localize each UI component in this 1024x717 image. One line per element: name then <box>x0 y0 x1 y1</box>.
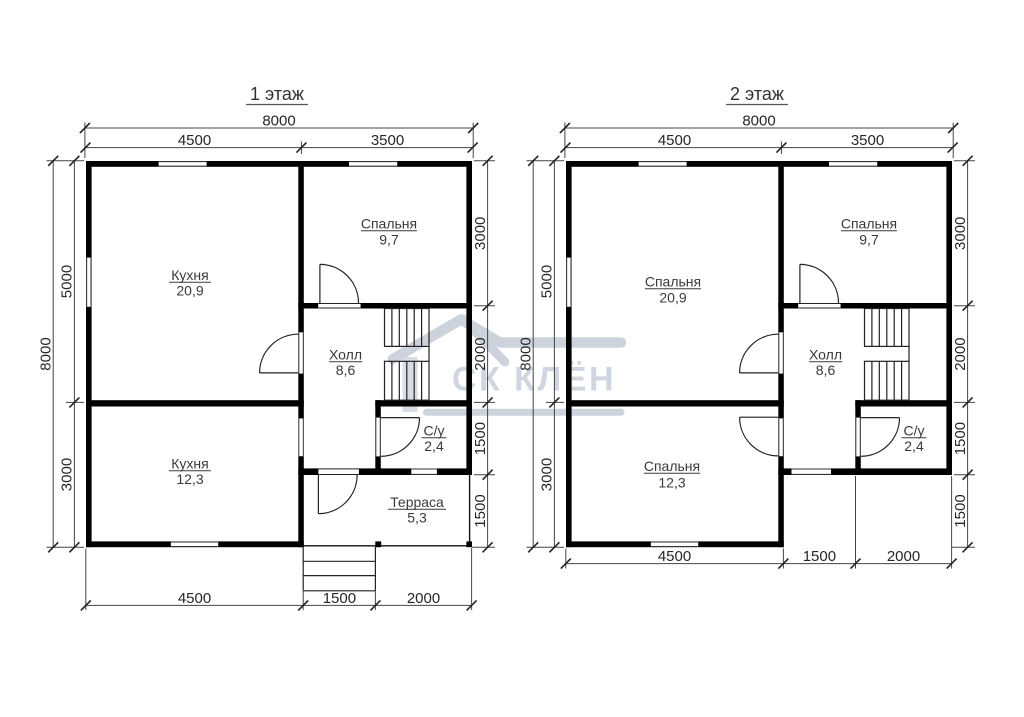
svg-text:8000: 8000 <box>38 337 55 370</box>
svg-text:Холл: Холл <box>329 347 362 363</box>
svg-text:3500: 3500 <box>371 132 404 149</box>
svg-text:Терраса: Терраса <box>390 494 444 510</box>
svg-text:Кухня: Кухня <box>171 456 208 472</box>
svg-text:2,4: 2,4 <box>424 438 444 454</box>
svg-text:5000: 5000 <box>59 265 76 298</box>
svg-text:Спальня: Спальня <box>841 216 897 232</box>
svg-text:3000: 3000 <box>539 458 556 491</box>
svg-text:3000: 3000 <box>952 217 969 250</box>
svg-text:2 этаж: 2 этаж <box>730 84 784 104</box>
svg-text:С/у: С/у <box>904 423 925 439</box>
svg-text:3500: 3500 <box>851 132 884 149</box>
svg-text:1 этаж: 1 этаж <box>250 84 304 104</box>
svg-text:9,7: 9,7 <box>859 232 879 248</box>
svg-text:4500: 4500 <box>178 590 211 607</box>
svg-text:Спальня: Спальня <box>644 458 700 474</box>
svg-text:1500: 1500 <box>472 494 489 527</box>
svg-text:3000: 3000 <box>472 217 489 250</box>
svg-text:8000: 8000 <box>742 113 775 130</box>
svg-text:5,3: 5,3 <box>407 510 427 526</box>
svg-text:4500: 4500 <box>658 548 691 565</box>
svg-text:1500: 1500 <box>472 422 489 455</box>
svg-text:20,9: 20,9 <box>659 290 686 306</box>
svg-text:12,3: 12,3 <box>658 475 685 491</box>
svg-text:8,6: 8,6 <box>336 362 356 378</box>
svg-text:1500: 1500 <box>323 590 356 607</box>
svg-text:4500: 4500 <box>178 132 211 149</box>
svg-text:12,3: 12,3 <box>176 471 203 487</box>
svg-text:9,7: 9,7 <box>379 232 399 248</box>
svg-text:8,6: 8,6 <box>816 362 836 378</box>
svg-text:1500: 1500 <box>952 422 969 455</box>
svg-text:4500: 4500 <box>658 132 691 149</box>
svg-text:1500: 1500 <box>803 548 836 565</box>
svg-text:8000: 8000 <box>518 337 535 370</box>
svg-text:2000: 2000 <box>407 590 440 607</box>
svg-text:2000: 2000 <box>472 337 489 370</box>
svg-text:Кухня: Кухня <box>171 267 208 283</box>
svg-text:Спальня: Спальня <box>361 216 417 232</box>
svg-text:5000: 5000 <box>539 265 556 298</box>
svg-text:2,4: 2,4 <box>904 438 924 454</box>
svg-text:3000: 3000 <box>59 458 76 491</box>
svg-text:20,9: 20,9 <box>176 283 203 299</box>
svg-text:Спальня: Спальня <box>645 274 701 290</box>
svg-text:2000: 2000 <box>887 548 920 565</box>
svg-text:1500: 1500 <box>952 494 969 527</box>
svg-text:Холл: Холл <box>809 347 842 363</box>
svg-text:2000: 2000 <box>952 337 969 370</box>
svg-text:8000: 8000 <box>262 113 295 130</box>
svg-text:С/у: С/у <box>424 423 445 439</box>
